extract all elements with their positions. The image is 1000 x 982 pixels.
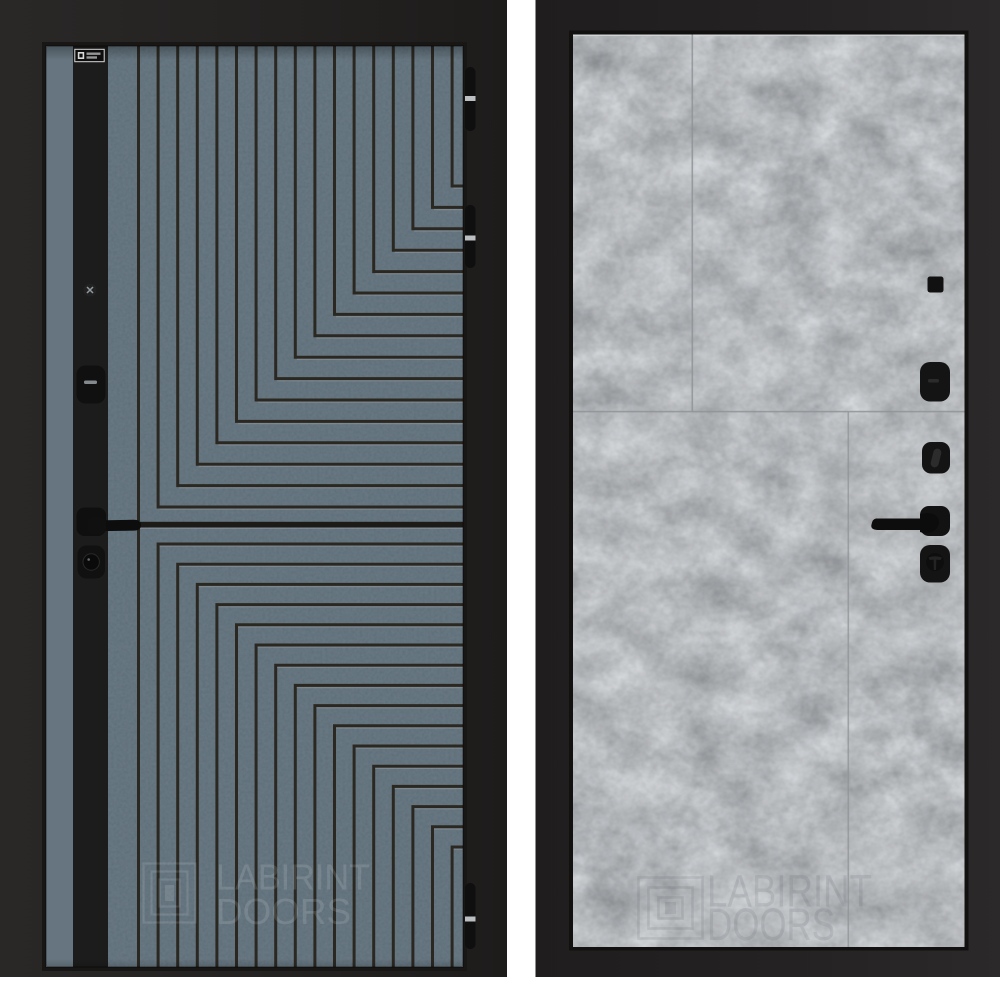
svg-text:DOORS: DOORS bbox=[707, 899, 835, 950]
svg-text:DOORS: DOORS bbox=[216, 891, 351, 932]
